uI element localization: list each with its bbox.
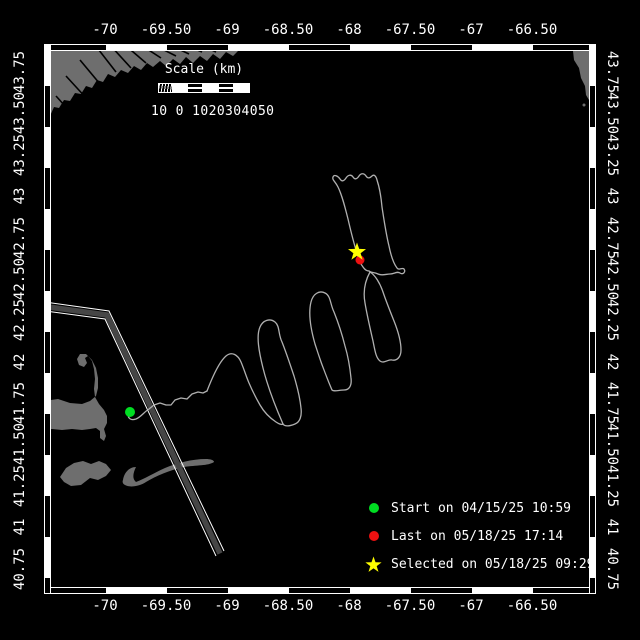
legend: Start on 04/15/25 10:59Last on 05/18/25 … [356, 494, 595, 578]
scale-bar-segment [234, 84, 249, 92]
start-position-marker[interactable] [125, 407, 135, 417]
islet [583, 104, 586, 107]
scale-bar-numbers: 10 0 1020304050 [151, 104, 274, 119]
land-polygon [123, 459, 214, 486]
y-axis-label: 40.75 [604, 529, 620, 609]
y-axis-label: 40.75 [12, 529, 28, 609]
scale-bar-segment [218, 84, 235, 92]
legend-dot-icon [369, 531, 379, 541]
legend-item: Selected on 05/18/25 09:29 [356, 550, 595, 578]
shipping-lane-line [51, 311, 216, 556]
legend-label: Selected on 05/18/25 09:29 [391, 557, 595, 572]
map-frame-bottom-band [44, 587, 596, 594]
drifter-track-path[interactable] [333, 174, 405, 275]
drifter-track-path[interactable] [364, 272, 401, 362]
drifter-track-path[interactable] [207, 354, 283, 425]
shipping-lane-fill [51, 307, 220, 554]
legend-dot-icon [364, 499, 383, 518]
drifter-track-path[interactable] [258, 320, 301, 426]
legend-dot-icon [364, 527, 383, 546]
river-line [51, 112, 60, 126]
land-polygon [60, 461, 111, 486]
scale-bar-graphic [158, 83, 250, 93]
map-frame-left-band [44, 44, 51, 594]
scale-bar-hatch-segment [159, 84, 172, 92]
scale-bar-segment [172, 84, 187, 92]
legend-item: Start on 04/15/25 10:59 [356, 494, 595, 522]
scale-bar-segment [187, 84, 204, 92]
legend-star-icon [364, 555, 383, 574]
scale-bar: Scale (km) 10 0 1020304050 [150, 62, 280, 120]
map-frame-top-band [44, 44, 596, 51]
x-axis-label: -66.50 [492, 598, 572, 614]
scale-bar-segment [203, 84, 218, 92]
x-axis-label: -66.50 [492, 22, 572, 38]
land-polygon [570, 51, 589, 100]
scale-bar-title: Scale (km) [158, 62, 250, 77]
drifter-track-path[interactable] [310, 292, 351, 391]
drifter-tracking-map-screen: -70-69.50-69-68.50-68-67.50-67-66.50 -70… [0, 0, 640, 640]
legend-item: Last on 05/18/25 17:14 [356, 522, 595, 550]
land-polygon [51, 354, 107, 441]
legend-dot-icon [369, 503, 379, 513]
legend-label: Last on 05/18/25 17:14 [391, 529, 563, 544]
legend-label: Start on 04/15/25 10:59 [391, 501, 571, 516]
